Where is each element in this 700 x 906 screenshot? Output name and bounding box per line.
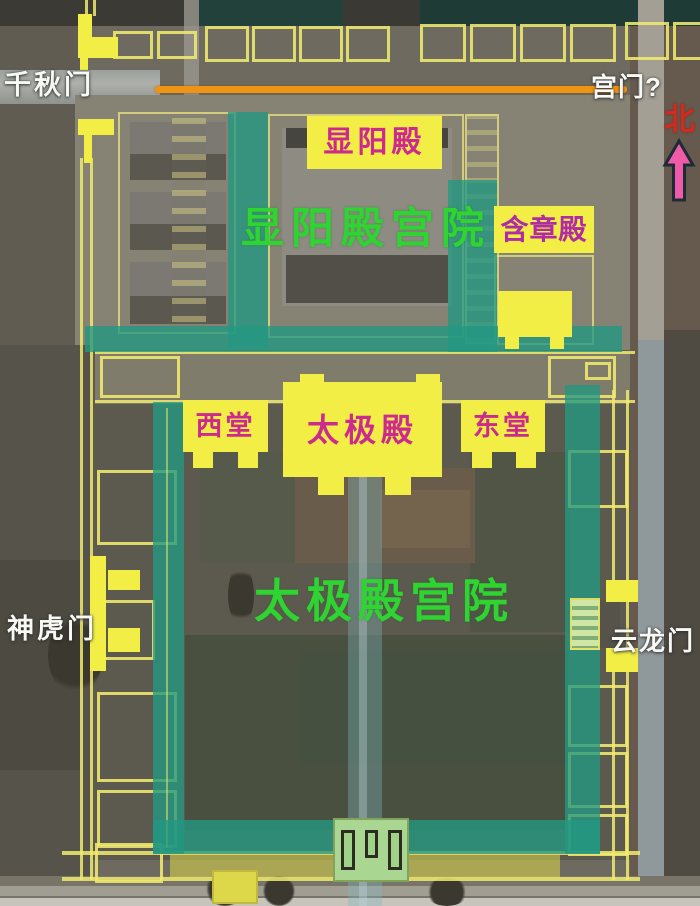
hanzhang-stair	[505, 337, 519, 349]
south-gate-platform	[333, 818, 409, 882]
south-building	[212, 870, 258, 904]
yunlong-gate-cell	[570, 598, 600, 650]
corridor-cell	[673, 22, 700, 60]
teal-corridor-west	[153, 402, 184, 854]
corridor-cell	[570, 24, 616, 62]
hall-west-label: 西堂	[196, 413, 256, 440]
hall-xianyang-box: 显阳殿	[307, 116, 442, 169]
hall-east-box: 东堂	[461, 400, 545, 452]
west-outer-wall	[80, 158, 83, 880]
south-gate-doorway	[365, 830, 378, 858]
south-gate-doorway	[341, 830, 355, 870]
shenhu-gate-pier	[108, 628, 140, 652]
gate-yunlong-label: 云龙门	[611, 628, 695, 654]
east-hall-stair	[472, 452, 492, 468]
corridor-cell	[157, 31, 197, 59]
qianqiu-gate-shape	[77, 13, 119, 71]
corridor-cell	[625, 22, 669, 60]
hanzhang-stair	[550, 337, 564, 349]
hall-hanzhang-box: 含章殿	[494, 206, 594, 253]
west-outer-wall	[90, 158, 93, 880]
corridor-cell	[520, 24, 566, 62]
hall-hanzhang-label: 含章殿	[500, 216, 587, 244]
corridor-cell	[252, 26, 296, 62]
court-xianyang-label: 显阳殿宫院	[241, 208, 491, 251]
corridor-cell	[470, 24, 516, 62]
taiji-stair-bottom	[385, 477, 411, 495]
wall-line	[166, 408, 168, 848]
north-arrow-icon	[660, 138, 698, 204]
gate-gongmen-label: 宫门?	[591, 74, 662, 100]
tree-blob	[228, 565, 254, 625]
west-corner-gate-shape	[77, 118, 115, 164]
corridor-cell	[346, 26, 390, 62]
court-taiji-label: 太极殿宫院	[254, 578, 514, 624]
gray-hall-shadow	[286, 255, 448, 303]
tree-blob	[425, 878, 469, 906]
corridor-cell	[299, 26, 343, 62]
hall-west-box: 西堂	[183, 400, 268, 452]
gate-shenhu-label: 神虎门	[7, 616, 97, 643]
east-hall-stair	[516, 452, 536, 468]
hall-taiji-label: 太极殿	[307, 414, 418, 446]
hanzhang-hall-shape	[498, 291, 572, 337]
corridor-cell	[205, 26, 249, 62]
hall-taiji-box: 太极殿	[283, 382, 442, 477]
hall-east-label: 东堂	[473, 413, 533, 440]
orange-axis-line	[155, 86, 627, 93]
corridor-cell	[113, 31, 153, 59]
taiji-stair-bottom	[318, 477, 344, 495]
compartment	[100, 356, 180, 398]
west-hall-stair	[238, 452, 258, 468]
corridor-ladder	[172, 118, 206, 332]
south-gate-doorway	[388, 830, 402, 870]
hall-xianyang-label: 显阳殿	[324, 128, 426, 158]
compartment	[585, 362, 611, 380]
annotated-satellite-map: 显阳殿 含章殿 太极殿 西堂 东堂 千秋门 宫门? 显阳殿宫院 太极殿宫院 神虎…	[0, 0, 700, 906]
corridor-cell	[420, 24, 466, 62]
gate-qianqiu-label: 千秋门	[4, 72, 94, 99]
north-label: 北	[664, 104, 695, 135]
shenhu-gate-pier	[108, 570, 140, 590]
yunlong-gate-pier	[606, 580, 638, 602]
west-hall-stair	[193, 452, 213, 468]
